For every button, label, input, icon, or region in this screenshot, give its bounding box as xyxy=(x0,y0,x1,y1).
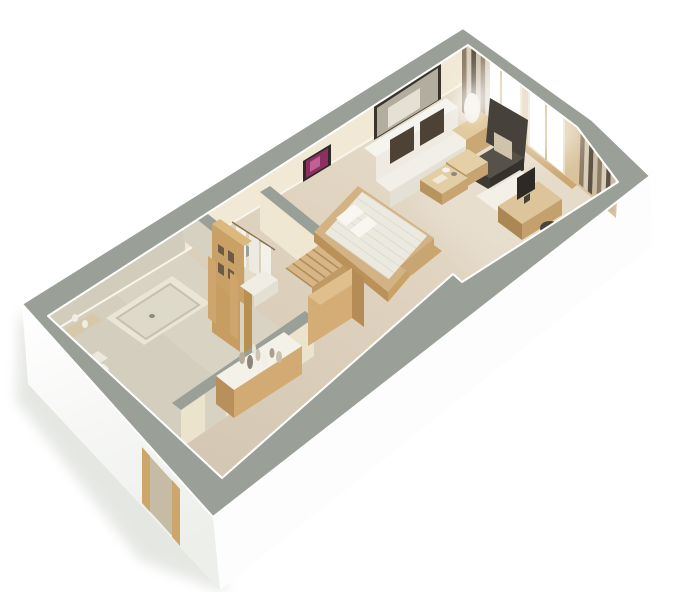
bathroom-tap-1 xyxy=(72,314,78,322)
table-vase-2 xyxy=(451,172,457,176)
minibar-bottle-3 xyxy=(256,349,261,361)
scene-items xyxy=(16,28,652,592)
floorplan-render-canvas xyxy=(0,0,690,592)
entrance-door-post-right xyxy=(172,480,180,546)
minibar-bottle-6 xyxy=(276,351,282,363)
minibar-bottle-5 xyxy=(270,348,275,358)
entrance-door-post-left xyxy=(142,447,150,512)
minibar-bottle-7 xyxy=(252,344,256,354)
floorplan-3d-render xyxy=(0,0,690,592)
table-vase-1 xyxy=(442,168,450,173)
minibar-bottle-2 xyxy=(247,355,253,369)
closet-door-post-1 xyxy=(208,256,216,324)
minibar-bottle-1 xyxy=(239,352,245,364)
closet-door-post-2 xyxy=(230,272,238,340)
minibar-bottle-4 xyxy=(262,353,268,367)
bathtub-drain xyxy=(149,314,155,318)
wardrobe-cabinet-side xyxy=(352,268,364,327)
bathroom-tap-2 xyxy=(82,320,88,328)
table-lamp-glow xyxy=(457,86,487,122)
